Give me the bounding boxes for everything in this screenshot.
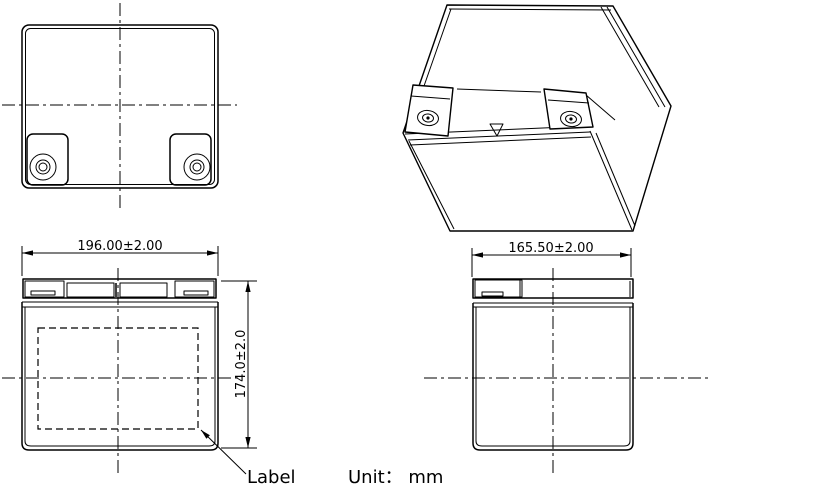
label-callout: Label <box>247 467 296 487</box>
terminal-recess <box>27 134 68 185</box>
dimension-value: 174.0±2.0 <box>234 330 249 399</box>
arrowhead <box>22 250 33 255</box>
front-width-dimension: 196.00±2.00 <box>22 239 218 276</box>
lid-recess <box>120 283 167 297</box>
arrowhead <box>620 252 631 257</box>
arrowhead <box>207 250 218 255</box>
isometric-view <box>403 5 671 231</box>
front-view <box>2 268 240 473</box>
lid-recess <box>67 283 114 297</box>
arrowhead <box>245 437 250 448</box>
arrowhead <box>472 252 483 257</box>
dimension-value: 196.00±2.00 <box>77 239 162 254</box>
terminal-slot <box>482 292 503 296</box>
top-view <box>2 3 237 212</box>
terminal-block <box>405 85 453 136</box>
battery-technical-drawing: 196.00±2.00 174.0±2.0 Label Unit： mm <box>0 0 837 487</box>
side-view <box>424 268 712 473</box>
terminal-post <box>184 154 210 180</box>
dimension-value: 165.50±2.00 <box>508 241 593 256</box>
drawing-canvas: 196.00±2.00 174.0±2.0 Label Unit： mm <box>0 0 837 487</box>
terminal-post <box>30 154 56 180</box>
front-height-dimension: 174.0±2.0 <box>221 281 257 448</box>
side-depth-dimension: 165.50±2.00 <box>472 241 631 277</box>
unit-note: Unit： mm <box>348 467 443 487</box>
terminal-slot <box>31 291 55 295</box>
case-outline <box>22 302 218 450</box>
terminal-slot <box>184 291 208 295</box>
terminal-block <box>544 89 593 129</box>
arrowhead <box>245 281 250 292</box>
